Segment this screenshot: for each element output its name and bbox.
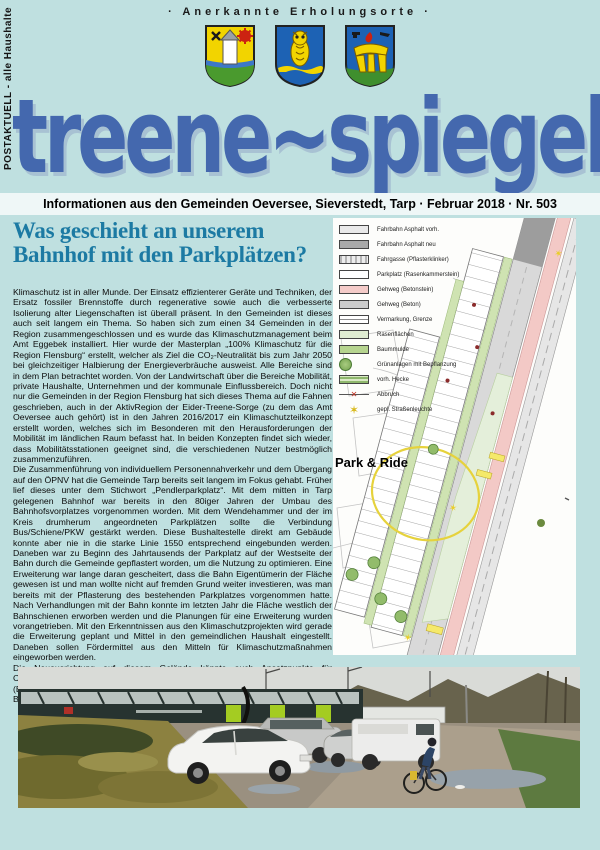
legend-row: Vermarkung, Grenze	[339, 313, 459, 326]
legend-label: Baummulde	[377, 347, 409, 353]
svg-text:✶: ✶	[553, 248, 564, 261]
map-legend: Fahrbahn Asphalt vorh.Fahrbahn Asphalt n…	[339, 223, 459, 418]
legend-label: Fahrgasse (Pflasterklinker)	[377, 257, 449, 263]
legend-label: vorh. Hecke	[377, 377, 409, 383]
site-plan-map: ✶✶✶ Fahrbahn Asphalt vorh.Fahrbahn Aspha…	[333, 218, 576, 655]
legend-label: Fahrbahn Asphalt vorh.	[377, 227, 439, 233]
sidewalk-existing-swatch	[339, 300, 369, 309]
article-body: Klimaschutz ist in aller Munde. Der Eins…	[13, 287, 332, 705]
legend-label: Rasenflächen	[377, 332, 414, 338]
legend-row: Fahrbahn Asphalt vorh.	[339, 223, 459, 236]
legend-row: Rasenflächen	[339, 328, 459, 341]
legend-row: Baummulde	[339, 343, 459, 356]
demolition-x-icon: ✕	[339, 390, 369, 399]
legend-row: Parkplatz (Rasenkammerstein)	[339, 268, 459, 281]
legend-row: Gehweg (Beton)	[339, 298, 459, 311]
station-parking-photo	[18, 667, 580, 808]
boundary-swatch	[339, 315, 369, 324]
asphalt-existing-swatch	[339, 225, 369, 234]
legend-label: Vermarkung, Grenze	[377, 317, 432, 323]
legend-row: vorh. Hecke	[339, 373, 459, 386]
legend-row: Fahrbahn Asphalt neu	[339, 238, 459, 251]
legend-label: Fahrbahn Asphalt neu	[377, 242, 436, 248]
hedge-swatch	[339, 375, 369, 384]
article-headline: Was geschieht an unserem Bahnhof mit den…	[13, 219, 343, 268]
legend-label: Gehweg (Beton)	[377, 302, 421, 308]
legend-label: Gehweg (Betonstein)	[377, 287, 433, 293]
park-and-ride-label: Park & Ride	[335, 455, 408, 470]
legend-row: ✶gepl. Straßenleuchte	[339, 403, 459, 416]
tree-icon	[339, 358, 352, 371]
article-paragraph: Klimaschutz ist in aller Munde. Der Eins…	[13, 287, 332, 464]
ribbon-text: · Anerkannte Erholungsorte ·	[0, 6, 600, 18]
parking-swatch	[339, 270, 369, 279]
legend-label: gepl. Straßenleuchte	[377, 407, 432, 413]
lawn-swatch	[339, 330, 369, 339]
paver-lane-swatch	[339, 255, 369, 264]
legend-label: Grünanlagen mit Bepflanzung	[377, 362, 456, 368]
newsletter-title: treene~spiegel	[12, 78, 600, 197]
sidewalk-new-swatch	[339, 285, 369, 294]
legend-label: Parkplatz (Rasenkammerstein)	[377, 272, 459, 278]
legend-label: Abbruch	[377, 392, 399, 398]
tree-pit-swatch	[339, 345, 369, 354]
legend-row: Gehweg (Betonstein)	[339, 283, 459, 296]
article-paragraph: Die Zusammenführung von individuellem Pe…	[13, 464, 332, 662]
asphalt-new-swatch	[339, 240, 369, 249]
legend-row: Fahrgasse (Pflasterklinker)	[339, 253, 459, 266]
legend-row: Grünanlagen mit Bepflanzung	[339, 358, 459, 371]
newsletter-front-page: POSTAKTUELL - alle Haushalte · Anerkannt…	[0, 0, 600, 850]
legend-row: ✕Abbruch	[339, 388, 459, 401]
streetlight-star-icon: ✶	[339, 405, 369, 414]
issue-info-line: Informationen aus den Gemeinden Oeversee…	[0, 193, 600, 215]
